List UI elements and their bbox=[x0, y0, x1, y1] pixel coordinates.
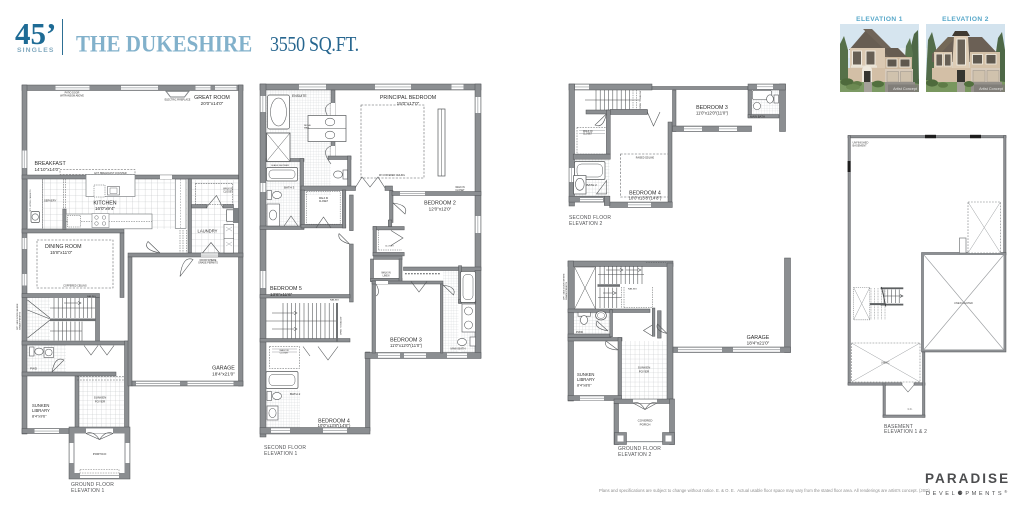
svg-text:14'10"x14'0": 14'10"x14'0" bbox=[35, 167, 61, 172]
svg-text:SERVERY: SERVERY bbox=[44, 199, 57, 203]
svg-text:WALK IN: WALK IN bbox=[280, 349, 289, 352]
svg-text:GRADE PERMITS: GRADE PERMITS bbox=[565, 281, 568, 300]
svg-text:ELECTRIC FIREPLACE: ELECTRIC FIREPLACE bbox=[165, 99, 191, 102]
svg-text:MAIN BATH: MAIN BATH bbox=[750, 114, 765, 118]
svg-text:GRADE PERMITS: GRADE PERMITS bbox=[198, 262, 218, 265]
svg-text:WALK IN: WALK IN bbox=[381, 272, 391, 275]
svg-text:PWD: PWD bbox=[30, 367, 38, 371]
svg-text:10'0"x13'8"(14'8"): 10'0"x13'8"(14'8") bbox=[629, 195, 662, 200]
svg-text:SHOWER: SHOWER bbox=[279, 165, 289, 167]
svg-text:CLOSET: CLOSET bbox=[223, 190, 233, 193]
svg-text:GRADE PERMITS: GRADE PERMITS bbox=[19, 311, 22, 330]
svg-text:WALK IN: WALK IN bbox=[455, 186, 465, 189]
svg-text:11'0"x12'0"(11'0"): 11'0"x12'0"(11'0") bbox=[390, 343, 423, 348]
svg-text:WALK IN: WALK IN bbox=[583, 130, 593, 133]
svg-text:RAISED CEILING: RAISED CEILING bbox=[636, 156, 655, 159]
svg-text:RAILING: RAILING bbox=[330, 299, 339, 302]
svg-text:UNEXC.: UNEXC. bbox=[881, 362, 890, 365]
svg-text:MAIN BATH: MAIN BATH bbox=[450, 347, 465, 351]
svg-text:12'0"x12'0": 12'0"x12'0" bbox=[429, 206, 452, 211]
svg-text:18'4"x21'0": 18'4"x21'0" bbox=[747, 341, 770, 346]
svg-text:PWD: PWD bbox=[576, 330, 584, 334]
svg-text:BATH 3: BATH 3 bbox=[284, 186, 295, 190]
svg-text:16'0"x9'4": 16'0"x9'4" bbox=[95, 206, 115, 211]
svg-text:EXT. BREAKFAST COUNTER: EXT. BREAKFAST COUNTER bbox=[94, 172, 127, 175]
svg-text:RAILING: RAILING bbox=[628, 288, 637, 291]
svg-text:OPEN TO BELOW: OPEN TO BELOW bbox=[341, 316, 343, 335]
svg-text:WALK IN: WALK IN bbox=[319, 197, 329, 200]
svg-text:BATH 2: BATH 2 bbox=[290, 392, 301, 396]
svg-text:W/TRANSOM ABOVE: W/TRANSOM ABOVE bbox=[60, 94, 84, 97]
svg-text:COFFERED CEILING: COFFERED CEILING bbox=[63, 285, 87, 288]
svg-text:W/ COFFERED CEILING: W/ COFFERED CEILING bbox=[379, 175, 405, 177]
svg-text:FOYER: FOYER bbox=[95, 400, 106, 404]
svg-text:CLOSET: CLOSET bbox=[280, 352, 289, 354]
svg-text:10'0"x13'8"(14'8"): 10'0"x13'8"(14'8") bbox=[318, 423, 351, 428]
svg-text:8'4"x9'6": 8'4"x9'6" bbox=[32, 415, 47, 419]
svg-text:CLOSET: CLOSET bbox=[583, 134, 593, 136]
svg-text:LIBRARY: LIBRARY bbox=[577, 377, 595, 382]
svg-text:FOYER: FOYER bbox=[639, 370, 650, 374]
svg-text:CLOSET: CLOSET bbox=[319, 201, 329, 203]
svg-text:GLASS: GLASS bbox=[271, 164, 279, 167]
svg-text:18'4"x21'0": 18'4"x21'0" bbox=[212, 372, 235, 377]
svg-text:LIBRARY: LIBRARY bbox=[32, 408, 50, 413]
svg-text:15'0"x17'0": 15'0"x17'0" bbox=[397, 101, 420, 106]
svg-text:RAILING: RAILING bbox=[87, 295, 96, 298]
svg-text:LAUNDRY: LAUNDRY bbox=[198, 229, 218, 234]
svg-text:UNEXCAVATED: UNEXCAVATED bbox=[954, 301, 973, 305]
svg-text:8'4"x8'6": 8'4"x8'6" bbox=[577, 384, 592, 388]
svg-text:OPT. UPPER CABINETS: OPT. UPPER CABINETS bbox=[29, 189, 32, 212]
svg-text:WALL: WALL bbox=[304, 127, 311, 130]
svg-text:ENSUITE: ENSUITE bbox=[292, 94, 307, 98]
svg-text:OPEN TO BELOW: OPEN TO BELOW bbox=[640, 90, 642, 109]
svg-text:C.C.: C.C. bbox=[908, 408, 913, 411]
svg-text:LINEN: LINEN bbox=[383, 275, 390, 277]
svg-text:11'0"x12'0"(11'0"): 11'0"x12'0"(11'0") bbox=[696, 111, 729, 116]
svg-text:BASEMENT: BASEMENT bbox=[853, 144, 868, 148]
svg-text:PORCH: PORCH bbox=[640, 423, 651, 427]
svg-text:CLOSET: CLOSET bbox=[455, 190, 465, 192]
svg-text:15'8"x11'0": 15'8"x11'0" bbox=[50, 250, 73, 255]
svg-text:13'6"x11'6": 13'6"x11'6" bbox=[270, 292, 293, 297]
svg-text:PORTICO: PORTICO bbox=[93, 452, 107, 456]
svg-text:BATH 2: BATH 2 bbox=[587, 183, 598, 187]
svg-text:CLOSET: CLOSET bbox=[385, 245, 394, 247]
svg-text:20'0"x14'0": 20'0"x14'0" bbox=[201, 101, 224, 106]
